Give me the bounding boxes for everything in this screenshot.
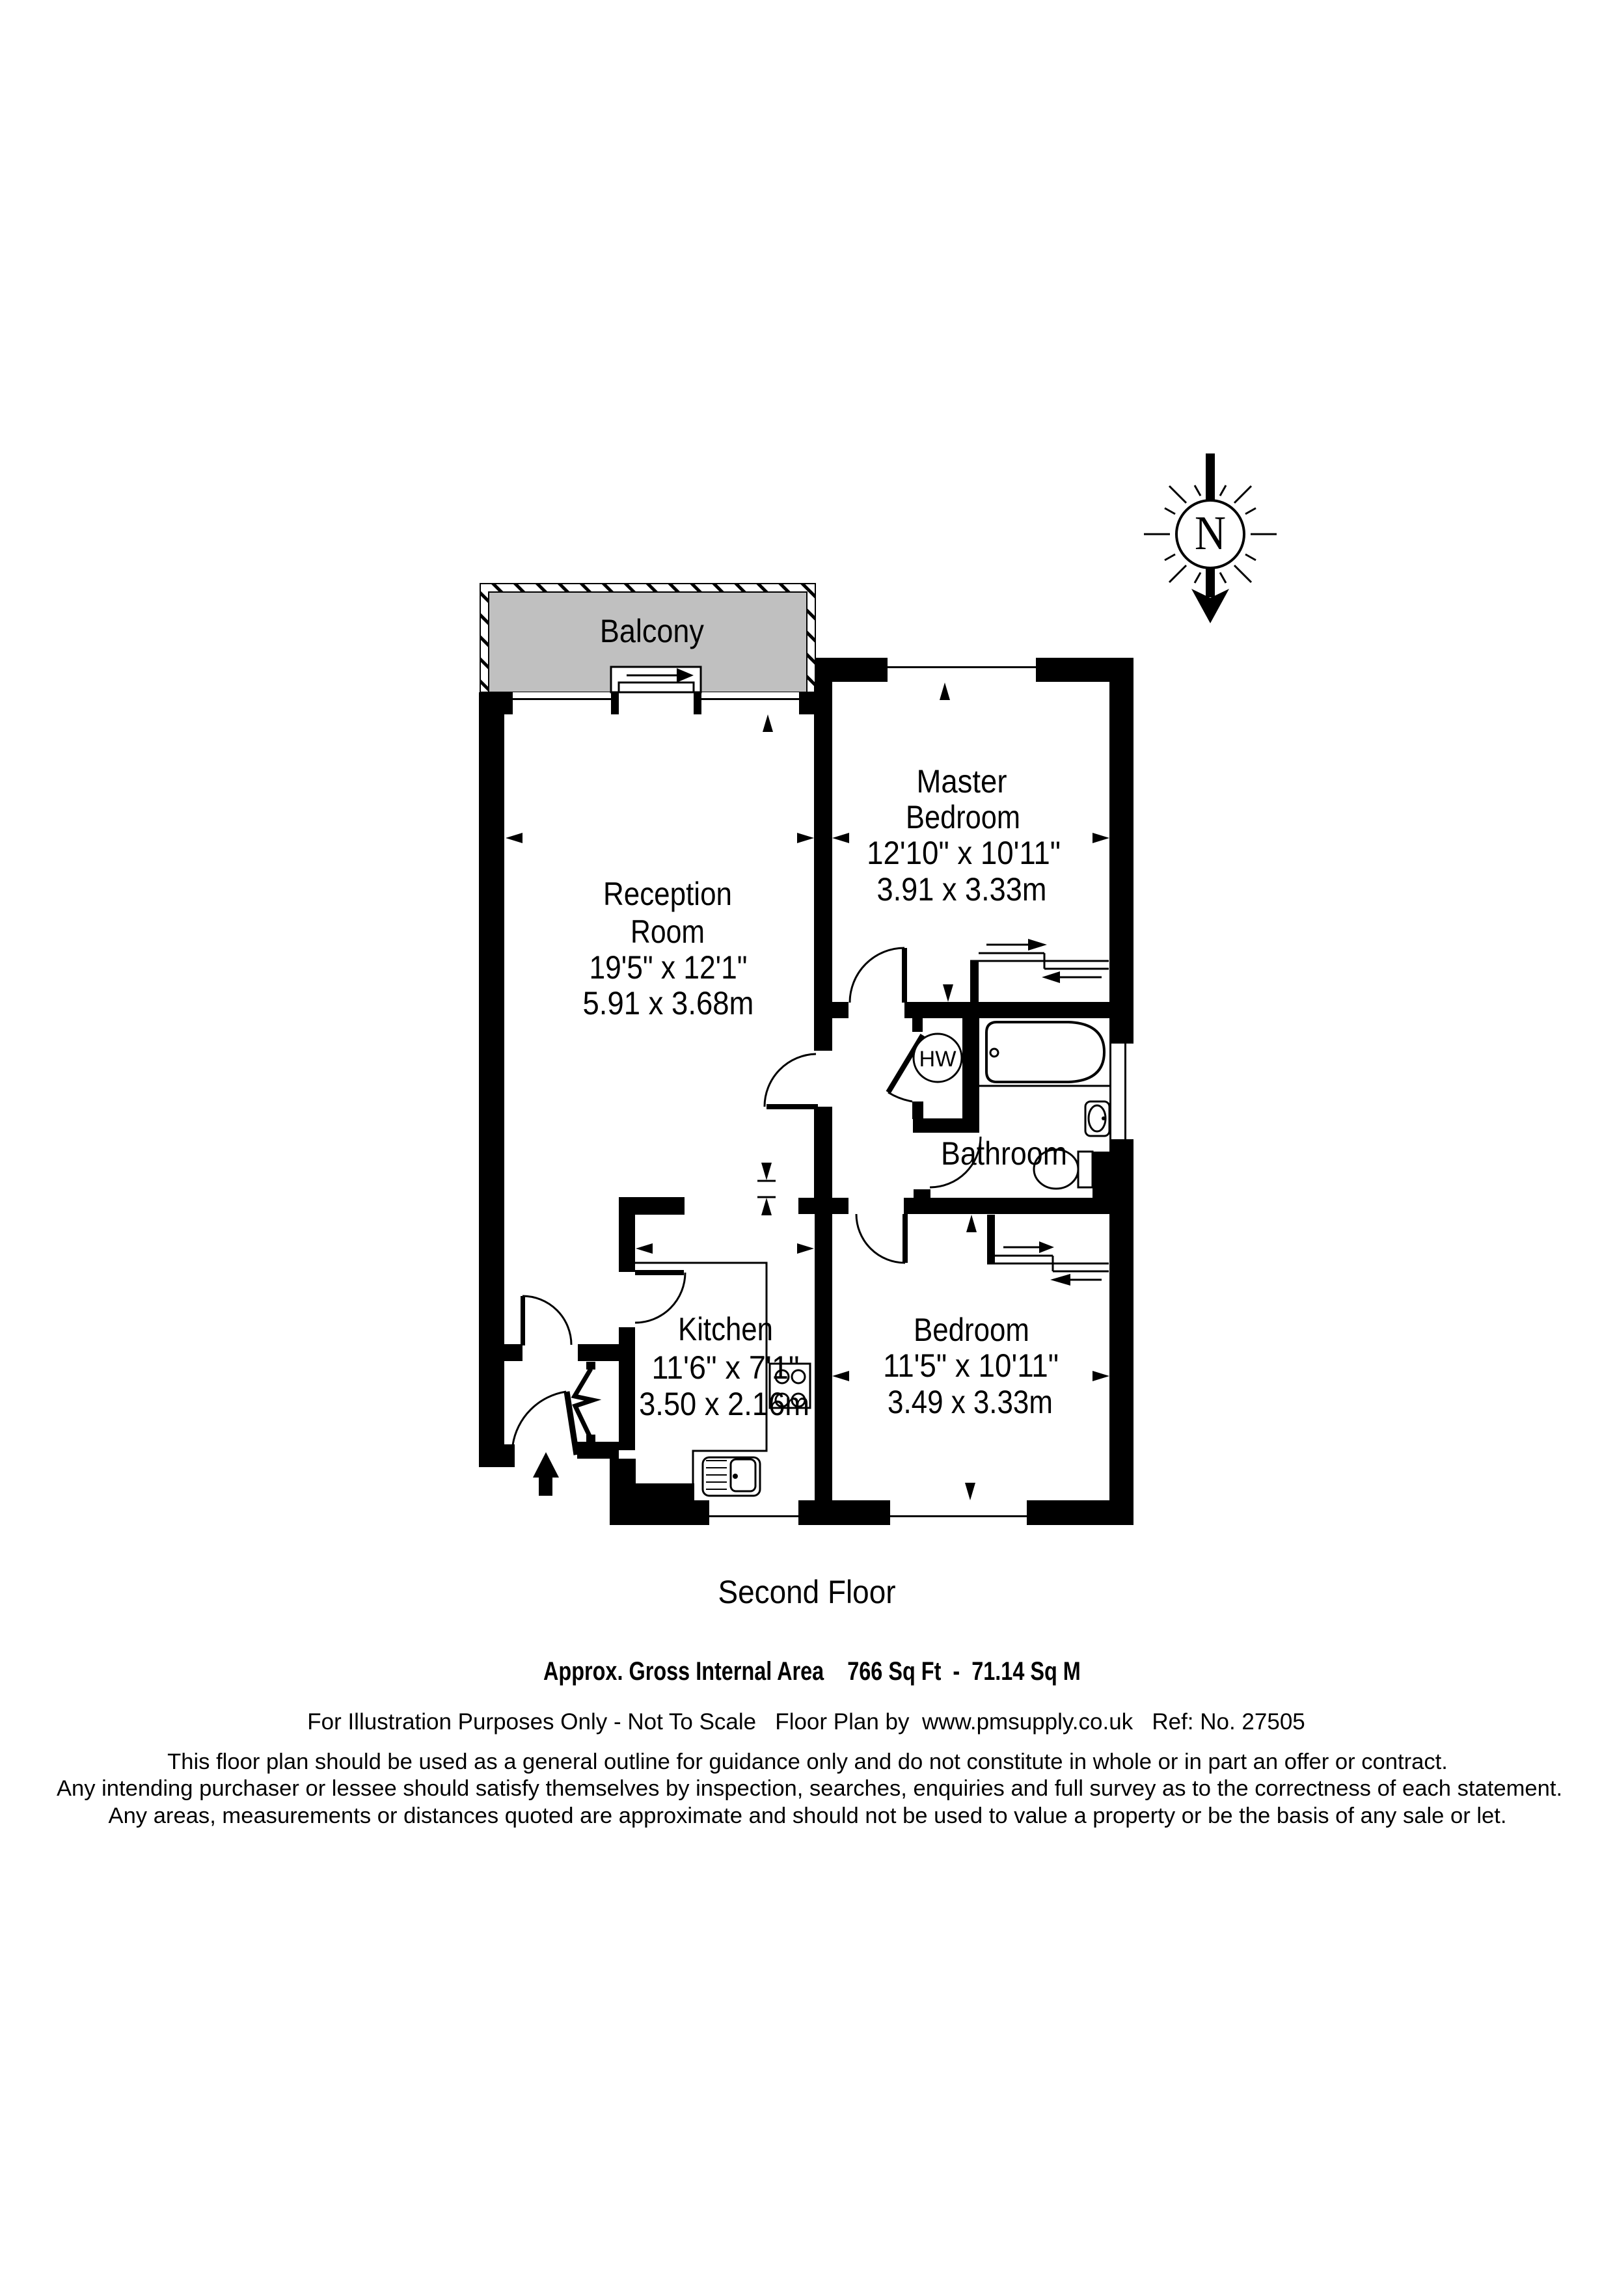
svg-text:Reception: Reception	[603, 875, 732, 912]
svg-text:5.91 x 3.68m: 5.91 x 3.68m	[583, 986, 754, 1021]
svg-text:This floor plan should be used: This floor plan should be used as a gene…	[167, 1749, 1448, 1774]
svg-text:Room: Room	[631, 913, 705, 950]
svg-text:Master: Master	[917, 764, 1007, 800]
svg-text:Bedroom: Bedroom	[906, 799, 1020, 835]
svg-text:3.50 x 2.16m: 3.50 x 2.16m	[639, 1386, 809, 1423]
svg-text:11'5" x 10'11": 11'5" x 10'11"	[883, 1348, 1059, 1384]
svg-text:HW: HW	[919, 1047, 957, 1072]
svg-text:Bathroom: Bathroom	[941, 1136, 1067, 1172]
svg-text:3.91 x 3.33m: 3.91 x 3.33m	[876, 872, 1046, 908]
svg-text:11'6" x 7'1": 11'6" x 7'1"	[652, 1350, 800, 1386]
svg-text:Balcony: Balcony	[600, 614, 704, 650]
svg-text:19'5" x 12'1": 19'5" x 12'1"	[590, 950, 748, 986]
svg-text:Kitchen: Kitchen	[678, 1310, 773, 1347]
svg-text:Second Floor: Second Floor	[718, 1574, 896, 1610]
svg-text:Approx. Gross Internal Area: Approx. Gross Internal Area 766 Sq Ft - …	[543, 1656, 1081, 1686]
svg-text:For Illustration Purposes Only: For Illustration Purposes Only - Not To …	[307, 1709, 1305, 1735]
svg-text:3.49 x 3.33m: 3.49 x 3.33m	[888, 1383, 1053, 1420]
svg-text:12'10" x 10'11": 12'10" x 10'11"	[867, 835, 1061, 871]
svg-text:Bedroom: Bedroom	[914, 1311, 1029, 1347]
svg-text:Any areas, measurements or dis: Any areas, measurements or distances quo…	[109, 1803, 1507, 1828]
svg-text:Any intending purchaser or les: Any intending purchaser or lessee should…	[57, 1776, 1562, 1801]
svg-text:N: N	[1195, 507, 1226, 560]
